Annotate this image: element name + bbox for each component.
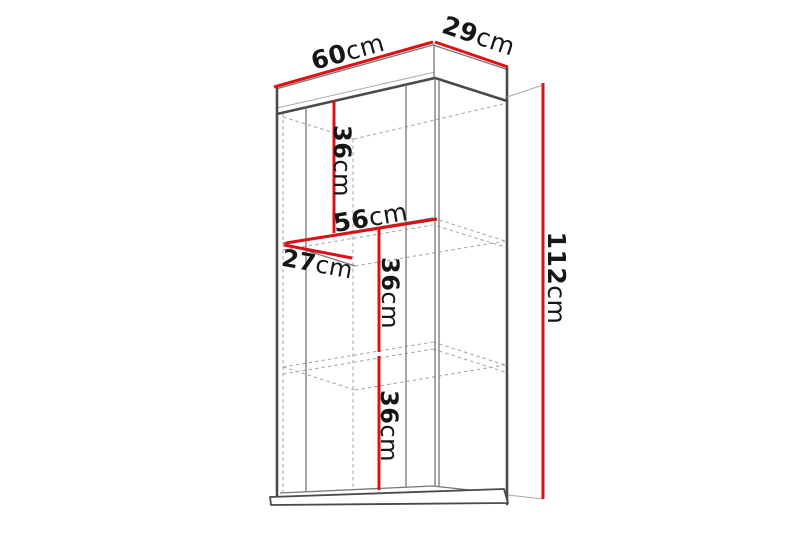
middle-section-label: 36cm — [376, 257, 404, 329]
height-label: 112cm — [543, 232, 572, 325]
top-panel-inner-line — [277, 72, 435, 108]
top-back-hidden-edge — [354, 103, 507, 139]
depth-label: 29cm — [439, 10, 519, 61]
shelf1-right-depth-edge — [433, 218, 505, 241]
top-section-label: 36cm — [328, 125, 356, 197]
bottom-section-label: 36cm — [375, 390, 403, 462]
shelf2-left-depth-edge — [283, 367, 355, 390]
cabinet-wireframe-svg: 60cm 29cm 112cm 36cm 56cm 27cm 36cm 36cm — [0, 0, 800, 533]
shelf2-right-thickness-edge — [433, 349, 505, 372]
interior-width-label: 56cm — [331, 197, 410, 238]
height-witness-top — [507, 85, 543, 97]
furniture-dimension-diagram: 60cm 29cm 112cm 36cm 56cm 27cm 36cm 36cm — [0, 0, 800, 533]
shelf2-right-depth-edge — [433, 342, 505, 365]
interior-depth-label: 27cm — [280, 244, 356, 285]
top-panel-bottom-edge — [277, 78, 507, 114]
shelf1-right-thickness-edge — [437, 226, 505, 247]
height-witness-bottom — [508, 495, 543, 499]
